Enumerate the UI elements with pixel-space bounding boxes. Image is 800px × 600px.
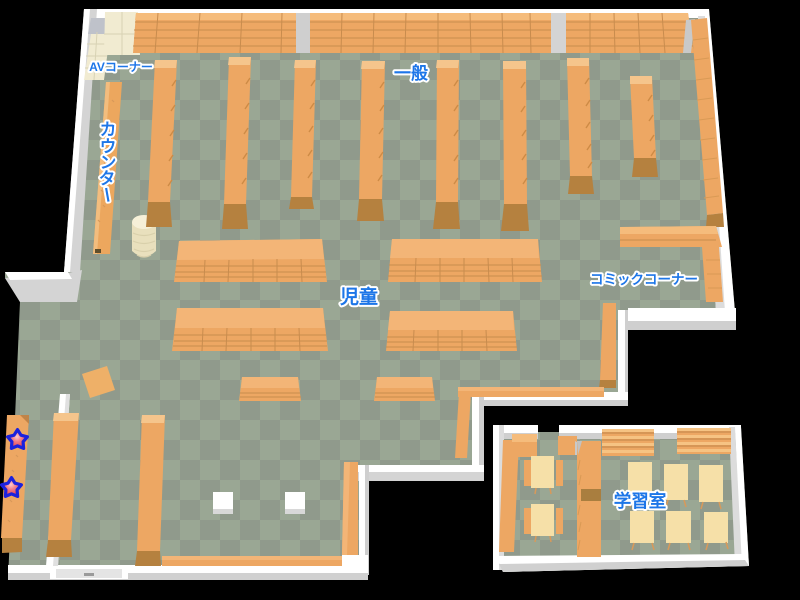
svg-text:コミックコーナー: コミックコーナー [590, 272, 698, 287]
svg-text:学習室: 学習室 [614, 491, 667, 511]
svg-text:ー: ー [96, 185, 117, 204]
svg-text:児童: 児童 [339, 285, 378, 308]
svg-text:一般: 一般 [394, 63, 428, 83]
svg-text:カ: カ [100, 120, 117, 139]
svg-text:AVコーナー: AVコーナー [89, 60, 153, 74]
